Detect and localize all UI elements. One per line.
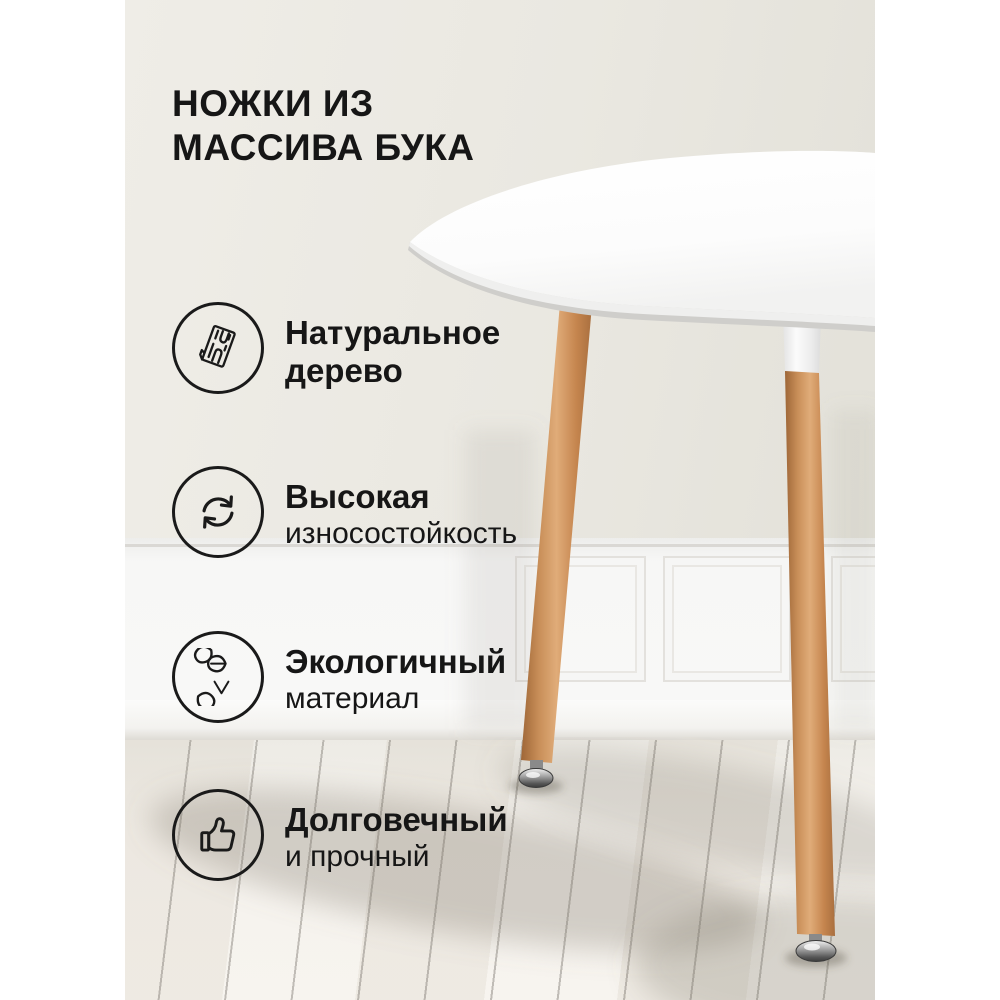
- feature-line2: и прочный: [285, 839, 508, 875]
- feature-line2: материал: [285, 681, 506, 717]
- feature-line1: Экологичный: [285, 643, 506, 681]
- product-infographic: НОЖКИ ИЗ МАССИВА БУКА Натуральное дерево: [0, 0, 1000, 1000]
- wall-shadow: [831, 410, 875, 730]
- page-title: НОЖКИ ИЗ МАССИВА БУКА: [172, 82, 475, 170]
- title-line1: НОЖКИ ИЗ: [172, 82, 475, 126]
- feature-line1: Натуральное: [285, 314, 500, 352]
- wood-plank-icon: [172, 302, 264, 394]
- feature-wear-resistance: Высокая износостойкость: [172, 466, 517, 558]
- feature-natural-wood: Натуральное дерево: [172, 302, 500, 394]
- feature-line1: Высокая: [285, 478, 517, 516]
- tabletop-surface: [410, 151, 875, 318]
- feature-eco-material: Экологичный материал: [172, 631, 506, 723]
- feature-line1: Долговечный: [285, 801, 508, 839]
- feature-line2: дерево: [285, 352, 500, 390]
- cycle-arrows-icon: [172, 466, 264, 558]
- feature-durable: Долговечный и прочный: [172, 789, 508, 881]
- feature-line2: износостойкость: [285, 516, 517, 552]
- eco-leaves-icon: [172, 631, 264, 723]
- title-line2: МАССИВА БУКА: [172, 126, 475, 170]
- thumbs-up-icon: [172, 789, 264, 881]
